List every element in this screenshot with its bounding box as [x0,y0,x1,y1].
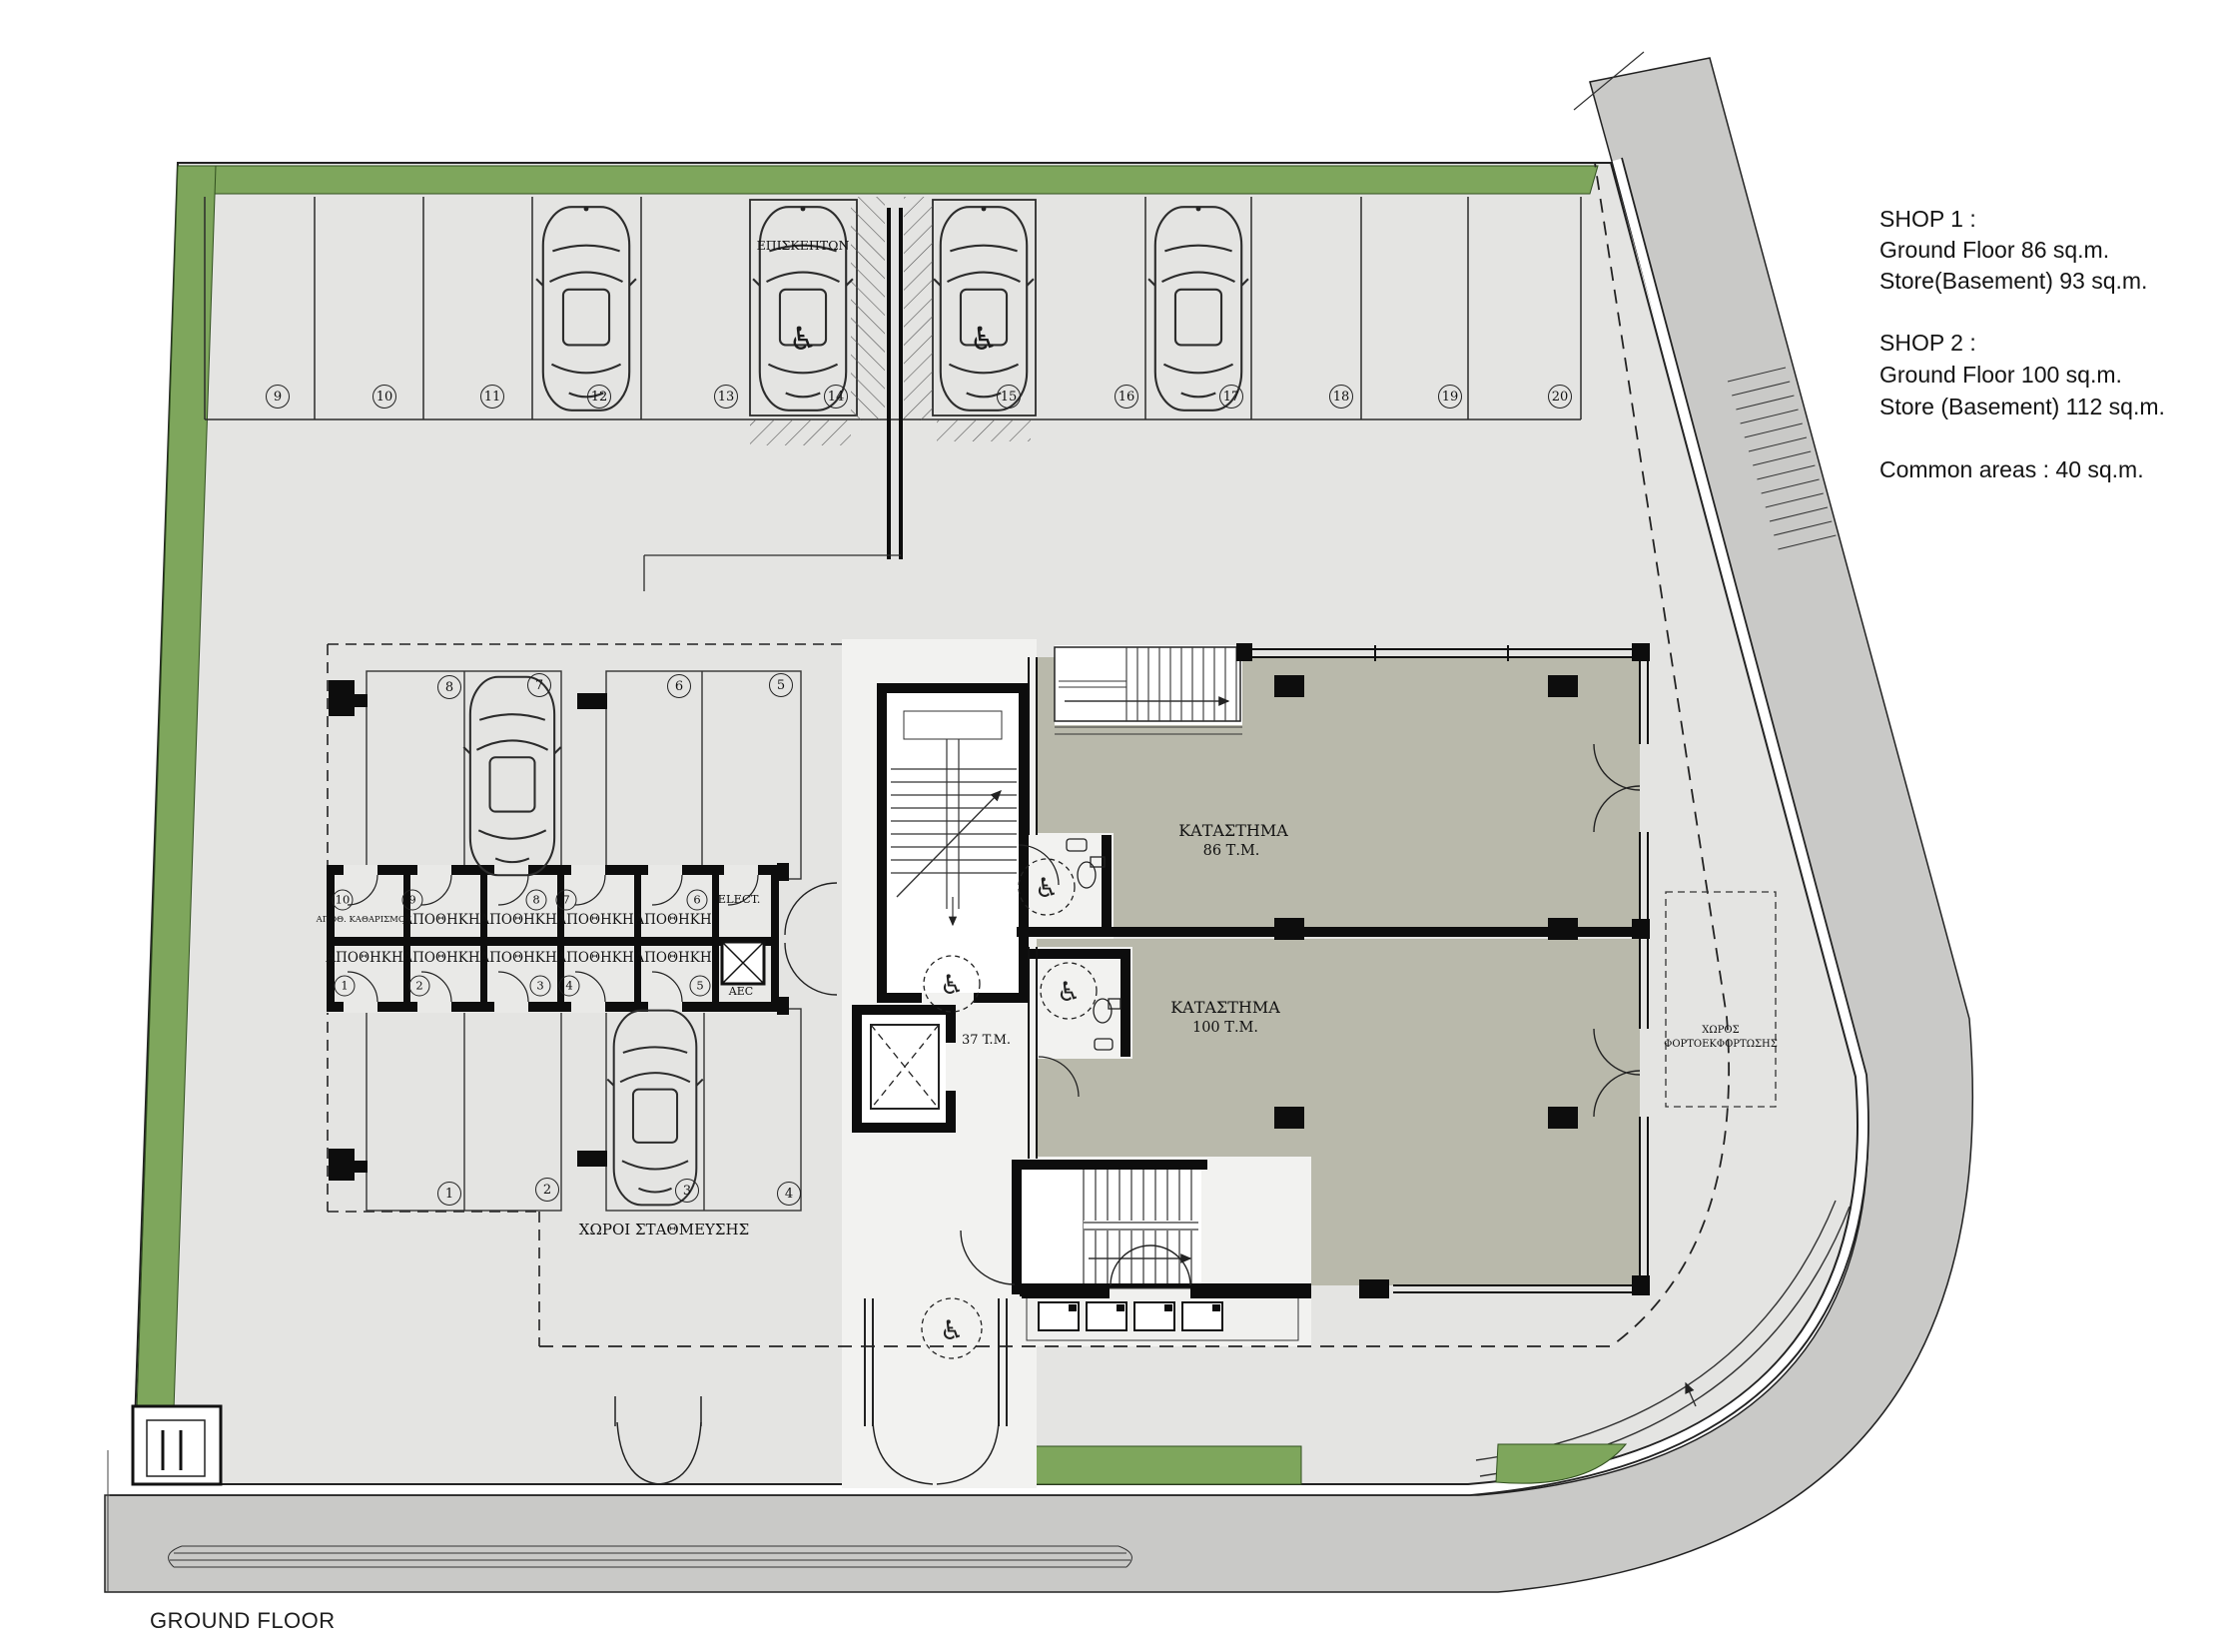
storage-number: 4 [559,976,580,997]
info-shop2-title: SHOP 2 : [1879,330,1976,357]
elevator [852,1005,956,1133]
parking-space-number: 11 [480,385,504,409]
parking-space-number: 1 [437,1182,461,1206]
parking-space-number: 15 [997,385,1021,409]
loading-area-label-2: ΦΟΡΤΟΕΚΦΟΡΤΩΣΗΣ [1664,1039,1778,1050]
lobby-area-label: 37 T.M. [962,1033,1011,1048]
parking-space-number: 16 [1115,385,1138,409]
cleaning-room-label: ΑΠΟΘ. ΚΑΘΑΡΙΣΜΟΥ [317,915,411,925]
main-staircase [877,683,1029,1003]
parking-space-number: 9 [266,385,290,409]
shop1-basement-stair [1055,647,1242,734]
shop1-name: ΚΑΤΑΣΤΗΜΑ [1178,821,1288,840]
parking-space-number: 13 [714,385,738,409]
shop1-area: 86 Τ.Μ. [1203,843,1260,859]
parking-space-number: 2 [535,1178,559,1202]
info-shop1-floor: Ground Floor 86 sq.m. [1879,237,2109,264]
parking-space-number: 18 [1329,385,1353,409]
green-planter-bottom [1022,1446,1301,1484]
storage-room-label: ΑΠΟΘΗΚΗ [634,950,711,966]
trash-enclosure [133,1406,221,1484]
parking-space-number: 17 [1219,385,1243,409]
storage-block [327,863,837,1015]
parking-space-number: 5 [769,673,793,697]
parking-space-number: 14 [824,385,848,409]
storage-number: 10 [333,890,354,911]
shaft-label: AEC [729,985,753,998]
parking-space-number: 19 [1438,385,1462,409]
info-shop2-floor: Ground Floor 100 sq.m. [1879,362,2122,389]
storage-room-label: ΑΠΟΘΗΚΗ [556,950,633,966]
parking-space-number: 3 [675,1179,699,1203]
info-shop1-store: Store(Basement) 93 sq.m. [1879,268,2147,295]
storage-number: 3 [530,976,551,997]
parking-space-number: 7 [527,673,551,697]
info-shop1-title: SHOP 1 : [1879,206,1976,233]
svg-text:♿: ♿ [1057,977,1081,1008]
floor-plan: ♿♿ ♿♿ [0,0,2239,1652]
hatch-under-14 [750,419,851,445]
svg-text:♿: ♿ [1035,873,1059,904]
info-shop2-store: Store (Basement) 112 sq.m. [1879,394,2165,420]
hatch-under-15 [937,419,1031,441]
storage-room-label: ΑΠΟΘΗΚΗ [326,950,402,966]
visitors-parking-label: ΕΠΙΣΚΕΠΤΩΝ [757,238,850,253]
parking-space-number: 20 [1548,385,1572,409]
storage-room-label: ΑΠΟΘΗΚΗ [556,912,633,928]
parking-space-number: 4 [777,1182,801,1206]
storage-number: 2 [409,976,430,997]
floor-title: GROUND FLOOR [150,1608,336,1634]
parking-space-number: 12 [587,385,611,409]
storage-room-label: ΑΠΟΘΗΚΗ [479,912,556,928]
storage-number: 1 [335,976,356,997]
storage-room-label: ΑΠΟΘΗΚΗ [479,950,556,966]
storage-number: 7 [556,890,577,911]
ramp-hatch-right [904,197,933,420]
storage-number: 5 [690,976,711,997]
storage-number: 6 [687,890,708,911]
storage-number: 9 [402,890,423,911]
green-top [198,166,1598,194]
loading-area-label-1: ΧΩΡΟΣ [1702,1025,1739,1036]
info-common-areas: Common areas : 40 sq.m. [1879,456,2144,483]
svg-text:♿: ♿ [789,320,818,358]
elect-room-label: ELECT. [718,892,761,906]
svg-text:♿: ♿ [940,1315,964,1346]
svg-text:♿: ♿ [940,970,964,1001]
shop2-name: ΚΑΤΑΣΤΗΜΑ [1170,998,1280,1017]
svg-text:♿: ♿ [970,320,999,358]
aec-shaft [722,942,764,984]
parking-space-number: 8 [437,675,461,699]
shop2-area: 100 Τ.Μ. [1192,1020,1258,1036]
parking-area-label: ΧΩΡΟΙ ΣΤΑΘΜΕΥΣΗΣ [579,1221,749,1239]
storage-room-label: ΑΠΟΘΗΚΗ [402,912,479,928]
storage-room-label: ΑΠΟΘΗΚΗ [402,950,479,966]
ramp-hatch-left [851,197,885,420]
storage-number: 8 [526,890,547,911]
parking-space-number: 6 [667,674,691,698]
storage-room-label: ΑΠΟΘΗΚΗ [634,912,711,928]
parking-space-number: 10 [373,385,396,409]
